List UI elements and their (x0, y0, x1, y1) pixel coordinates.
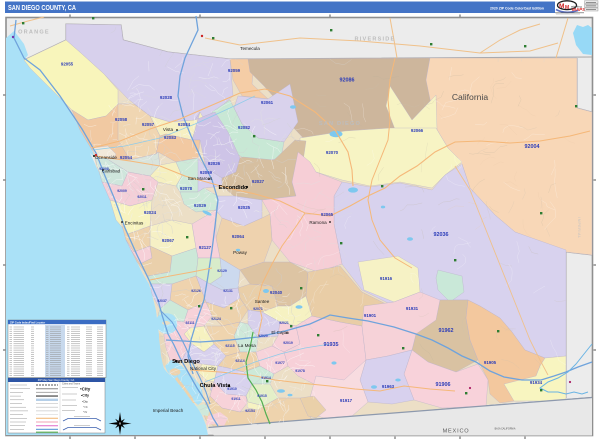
svg-text:Santee: Santee (255, 299, 270, 304)
svg-text:92054: 92054 (120, 155, 133, 160)
svg-text:92126: 92126 (191, 289, 201, 293)
svg-text:92067: 92067 (162, 238, 175, 243)
svg-text:Imperial Beach: Imperial Beach (153, 408, 184, 413)
svg-text:92026: 92026 (208, 161, 221, 166)
svg-text:92086: 92086 (340, 78, 355, 84)
svg-text:92084: 92084 (178, 122, 191, 127)
svg-text:Temecula: Temecula (240, 46, 260, 51)
svg-text:IMPERIAL: IMPERIAL (577, 217, 581, 238)
svg-text:•City: •City (81, 394, 89, 398)
svg-text:92129: 92129 (217, 269, 227, 273)
svg-text:91915: 91915 (257, 394, 267, 398)
svg-text:91963: 91963 (382, 384, 395, 389)
svg-text:92131: 92131 (223, 289, 233, 293)
svg-text:91962: 91962 (439, 328, 454, 334)
svg-text:92024: 92024 (144, 210, 157, 215)
svg-text:SAN DIEGO: SAN DIEGO (319, 121, 361, 127)
svg-text:92011: 92011 (137, 195, 146, 199)
svg-text:91906: 91906 (436, 382, 451, 388)
svg-text:91934: 91934 (530, 380, 543, 385)
svg-text:92154: 92154 (245, 409, 255, 413)
svg-text:Carlsbad: Carlsbad (102, 169, 121, 174)
svg-text:92020: 92020 (258, 334, 268, 338)
svg-text:91931: 91931 (406, 306, 419, 311)
svg-text:91901: 91901 (364, 313, 377, 318)
svg-text:91914: 91914 (261, 376, 271, 380)
svg-text:RIVERSIDE: RIVERSIDE (355, 37, 396, 43)
svg-text:ORANGE: ORANGE (18, 30, 50, 36)
svg-text:Ramona: Ramona (309, 220, 327, 225)
svg-text:MEXICO: MEXICO (443, 429, 470, 435)
svg-text:92065: 92065 (321, 212, 334, 217)
svg-text:92057: 92057 (142, 122, 155, 127)
svg-text:92127: 92127 (199, 245, 212, 250)
svg-text:BAJA CALIFORNIA: BAJA CALIFORNIA (495, 428, 516, 431)
svg-text:91977: 91977 (275, 361, 285, 365)
svg-text:91935: 91935 (324, 342, 339, 348)
svg-text:92061: 92061 (261, 100, 274, 105)
svg-text:Vista: Vista (163, 127, 174, 132)
svg-text:92058: 92058 (115, 117, 128, 122)
svg-text:92071: 92071 (253, 307, 263, 311)
svg-text:Poway: Poway (233, 250, 247, 255)
svg-text:92028: 92028 (160, 95, 173, 100)
svg-text:92019: 92019 (283, 341, 293, 345)
svg-text:91916: 91916 (380, 276, 393, 281)
svg-text:La Mesa: La Mesa (238, 343, 256, 348)
svg-text:Chula Vista: Chula Vista (200, 383, 232, 389)
svg-text:92027: 92027 (252, 179, 265, 184)
svg-text:92115: 92115 (225, 344, 234, 348)
svg-text:92055: 92055 (61, 62, 74, 67)
svg-text:92082: 92082 (238, 125, 251, 130)
svg-text:92124: 92124 (211, 317, 221, 321)
svg-text:Oceanside: Oceanside (95, 155, 117, 160)
svg-text:91978: 91978 (295, 369, 305, 373)
svg-text:92036: 92036 (434, 232, 449, 238)
svg-text:92083: 92083 (164, 135, 177, 140)
svg-text:•City: •City (83, 410, 87, 413)
svg-text:92029: 92029 (194, 203, 207, 208)
svg-text:El Cajon: El Cajon (271, 330, 289, 335)
svg-text:San Diego: San Diego (172, 359, 200, 365)
svg-text:92025: 92025 (238, 205, 251, 210)
svg-text:92059: 92059 (228, 68, 241, 73)
svg-text:California: California (452, 92, 489, 102)
svg-text:92066: 92066 (411, 128, 424, 133)
svg-text:91911: 91911 (231, 397, 240, 401)
svg-text:San Marcos: San Marcos (188, 176, 213, 181)
svg-text:National City: National City (190, 366, 217, 371)
svg-text:92021: 92021 (279, 321, 289, 325)
svg-text:91905: 91905 (484, 360, 497, 365)
svg-text:•City: •City (80, 387, 91, 392)
svg-text:92009: 92009 (117, 189, 127, 193)
svg-text:92078: 92078 (180, 186, 193, 191)
svg-text:•City: •City (82, 399, 88, 403)
svg-text:92064: 92064 (232, 234, 245, 239)
svg-text:ZIP Code Index/Find Locator: ZIP Code Index/Find Locator (10, 320, 45, 324)
svg-text:92004: 92004 (525, 144, 540, 150)
svg-text:ZIP Map San Diego County, CA: ZIP Map San Diego County, CA (38, 378, 75, 382)
svg-text:91917: 91917 (340, 398, 353, 403)
svg-text:Escondido: Escondido (218, 185, 248, 191)
svg-text:Encinitas: Encinitas (125, 221, 144, 226)
svg-text:92037: 92037 (157, 299, 167, 303)
svg-text:92111: 92111 (185, 321, 194, 325)
svg-text:Cities and Towns: Cities and Towns (62, 383, 81, 386)
svg-text:92069: 92069 (200, 170, 213, 175)
svg-text:92040: 92040 (270, 290, 283, 295)
svg-text:92070: 92070 (326, 150, 339, 155)
svg-text:92114: 92114 (235, 359, 244, 363)
